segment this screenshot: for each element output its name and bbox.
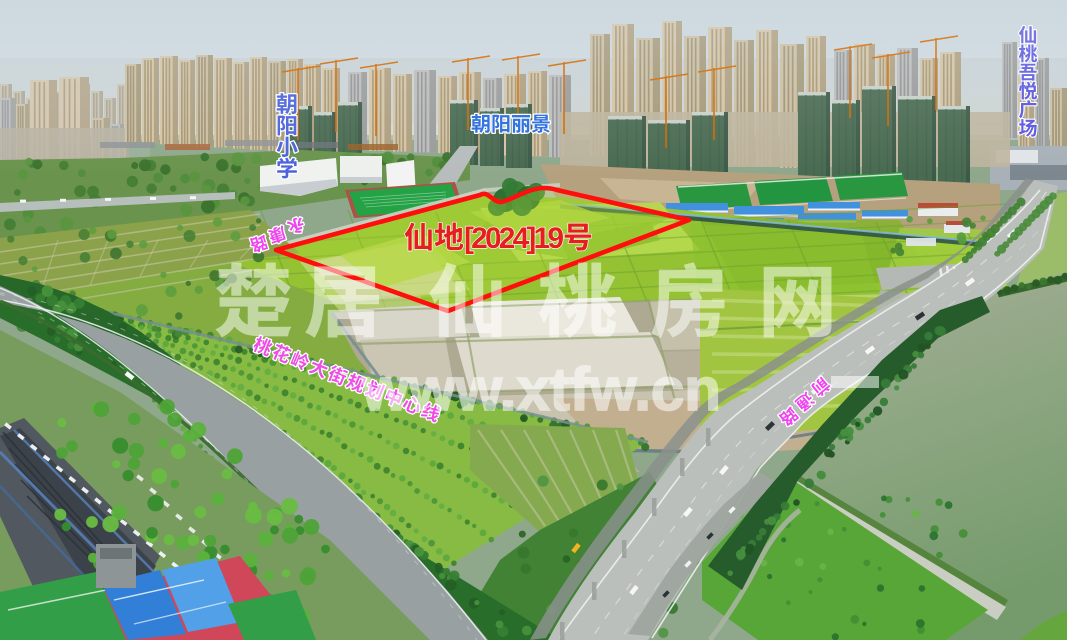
svg-text:www.xtfw.cn: www.xtfw.cn (361, 356, 721, 423)
svg-text:[2024]19: [2024]19 (464, 222, 564, 255)
